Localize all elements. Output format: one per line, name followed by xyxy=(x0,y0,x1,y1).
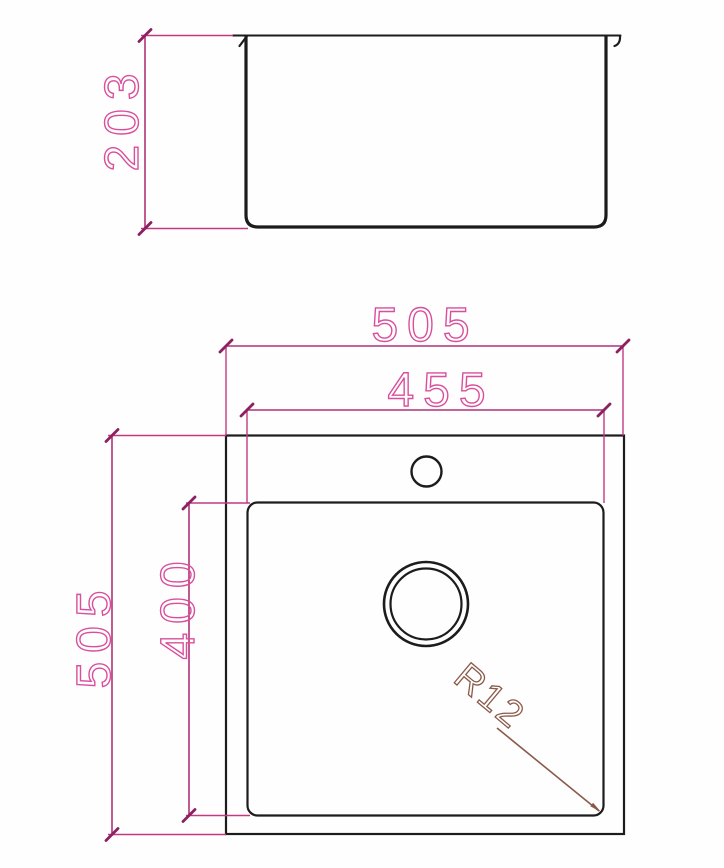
sink-dimension-drawing: 203 505 xyxy=(0,0,724,868)
plan-outer-rim xyxy=(226,436,624,835)
dimension-label-overall-width: 505 xyxy=(371,299,478,352)
dimension-bowl-depth: 400 xyxy=(152,497,250,822)
leader-line xyxy=(497,728,599,811)
dimension-side-depth: 203 xyxy=(96,30,248,235)
dimension-label-overall-depth: 505 xyxy=(68,581,121,688)
faucet-hole xyxy=(412,457,442,487)
side-view xyxy=(233,36,621,228)
drain-inner-circle xyxy=(391,569,462,640)
drain-outer-circle xyxy=(384,562,468,646)
dimension-label-bowl-depth: 400 xyxy=(152,552,205,659)
side-view-bowl-outline xyxy=(246,37,606,228)
side-view-right-rim-lip xyxy=(615,36,621,46)
radius-callout: R12 xyxy=(446,655,601,812)
radius-label: R12 xyxy=(446,655,533,738)
technical-drawing-canvas: 203 505 xyxy=(0,0,724,868)
dimension-label-bowl-width: 455 xyxy=(387,364,494,417)
plan-bowl xyxy=(248,503,604,816)
leader-arrowhead xyxy=(590,803,601,812)
dimension-bowl-width: 455 xyxy=(241,364,610,503)
plan-view xyxy=(226,436,624,835)
dimension-label-side-depth: 203 xyxy=(96,64,149,171)
